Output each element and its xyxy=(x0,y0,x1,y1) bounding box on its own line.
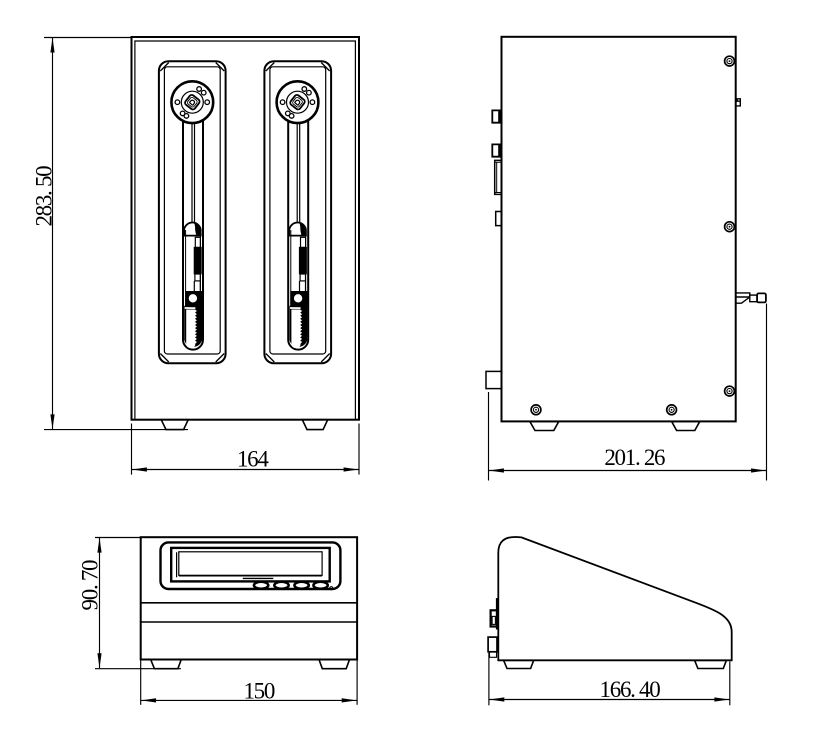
svg-text:201. 26: 201. 26 xyxy=(604,445,665,470)
svg-text:90. 70: 90. 70 xyxy=(78,560,103,611)
svg-text:164: 164 xyxy=(237,446,269,471)
svg-text:150: 150 xyxy=(243,679,274,704)
svg-text:283. 50: 283. 50 xyxy=(32,166,57,227)
svg-text:166. 40: 166. 40 xyxy=(600,677,661,702)
